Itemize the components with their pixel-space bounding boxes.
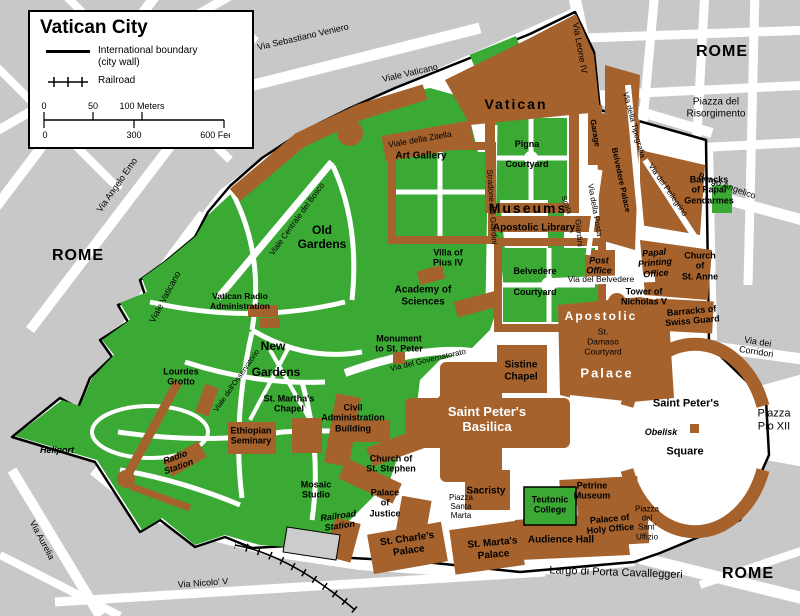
label-ethiopian-seminary: Ethiopian Seminary: [231, 426, 272, 447]
label-radio-station: Radio Station: [159, 447, 195, 477]
label-petrine-museum: Petrine Museum: [574, 481, 611, 502]
label-viale-vaticano-west: Viale Vaticano: [147, 270, 183, 325]
label-palace: Palace: [580, 367, 633, 382]
label-audience-hall: Audience Hall: [528, 534, 594, 546]
label-monument-to-st-peter: Monument to St. Peter: [375, 334, 423, 355]
legend-boundary-row: International boundary (city wall): [46, 45, 244, 69]
scale-m100: 100 Meters: [119, 101, 165, 111]
label-via-angelo-emo: Via Angelo Emo: [94, 156, 139, 214]
label-church-of-st-anne: Church of St. Anne: [682, 250, 718, 281]
label-piazza-pio-xii: Piazza Pio XII: [757, 407, 790, 432]
label-piazza-del-sant-uffizio: Piazza del Sant' Uffizio: [635, 505, 659, 542]
label-via-della-tipografia: Via della Tipografia: [621, 91, 647, 159]
label-papal-printing-office: Papal Printing Office: [637, 246, 674, 280]
label-via-del-pellegrino: Via del Pellegrino: [646, 162, 689, 218]
legend-box: Vatican City International boundary (cit…: [28, 10, 254, 149]
label-vatican-radio-administration: Vatican Radio Administration: [210, 292, 270, 312]
label-sacristy: Sacristy: [467, 485, 506, 497]
label-apostolic: Apostolic: [565, 310, 638, 324]
label-via-leone-iv: Via Leone IV: [570, 22, 589, 74]
label-railroad-station: Railroad Station: [320, 508, 359, 533]
label-viale-vaticano-top: Viale Vaticano: [381, 62, 439, 85]
label-via-sebastiano-veniero: Via Sebastiano Veniero: [256, 21, 349, 52]
label-heliport: Heliport: [40, 445, 74, 455]
label-palace-of-holy-office: Palace of Holy Office: [585, 512, 634, 537]
map-title: Vatican City: [40, 17, 244, 39]
legend-railroad-row: Railroad: [46, 75, 244, 93]
vatican-city-map: ROME ROME ROME Vatican Museums Old Garde…: [0, 0, 800, 616]
scale-f0: 0: [42, 130, 47, 140]
railroad-swatch-icon: [46, 76, 90, 88]
label-st-damaso-courtyard: St. Damaso Courtyard: [584, 327, 621, 356]
label-new: New: [261, 340, 286, 354]
label-academy-of-sciences: Academy of Sciences: [395, 285, 452, 308]
label-st-martas-palace: St. Marta's Palace: [467, 535, 519, 562]
label-art-gallery: Art Gallery: [395, 150, 446, 162]
label-civil-administration-building: Civil Administration Building: [321, 402, 385, 433]
label-post-office: Post Office: [586, 256, 611, 277]
label-villa-of-pius-iv: Villa of Pius IV: [433, 248, 463, 269]
label-belvedere-palace: Belvedere Palace: [610, 147, 633, 213]
label-via-dei-corridori: Via dei Corridori: [734, 333, 780, 360]
label-rome-northeast: ROME: [696, 43, 748, 61]
scale-bar: 0 50 100 Meters 0 300 600 Feet: [40, 99, 230, 141]
label-via-del-belvedere: Via del Belvedere: [568, 275, 634, 285]
scale-m50: 50: [88, 101, 98, 111]
label-saint-peters: Saint Peter's: [653, 398, 719, 411]
label-piazza-santa-marta: Piazza Santa Marta: [449, 493, 473, 521]
label-lourdes-grotto: Lourdes Grotto: [163, 367, 199, 388]
label-barracks-of-papal-gendarmes: Barracks of Papal Gendarmes: [684, 174, 734, 205]
label-barracks-of-swiss-guard: Barracks of Swiss Guard: [664, 303, 720, 328]
scale-f300: 300: [126, 130, 141, 140]
label-sistine-chapel: Sistine Chapel: [504, 360, 537, 383]
label-largo-di-porta-cavalleggeri: Largo di Porta Cavalleggeri: [549, 564, 683, 581]
label-apostolic-library: Apostolic Library: [493, 222, 575, 234]
label-church-of-st-stephen: Church of St. Stephen: [366, 454, 416, 475]
scale-m0: 0: [41, 101, 46, 111]
label-viale-della-zitella: Viale della Zitella: [388, 130, 453, 151]
label-old-gardens: Old Gardens: [298, 224, 347, 252]
label-obelisk: Obelisk: [645, 427, 678, 437]
legend-boundary-label: International boundary (city wall): [98, 45, 198, 69]
label-st-marthas-chapel: St. Martha's Chapel: [264, 394, 315, 415]
label-tower-of-nicholas-v: Tower of Nicholas V: [621, 287, 667, 308]
label-palace-of-justice: Palace of Justice: [369, 487, 400, 518]
label-rome-southeast: ROME: [722, 565, 774, 583]
label-pigna-courtyard: Pigna Courtyard: [505, 134, 548, 174]
label-teutonic-college: Teutonic College: [532, 495, 569, 516]
label-piazza-del-risorgimento: Piazza del Risorgimento: [687, 97, 746, 120]
scale-f600: 600 Feet: [200, 130, 230, 140]
label-museums: Museums: [489, 200, 568, 216]
label-vatican: Vatican: [484, 96, 547, 112]
label-saint-peters-basilica: Saint Peter's Basilica: [448, 405, 526, 435]
label-square: Square: [666, 446, 703, 459]
label-belvedere-courtyard: Belvedere Courtyard: [513, 261, 556, 303]
label-via-aurelia: Via Aurelia: [27, 519, 56, 562]
label-garage: Garage: [588, 119, 602, 148]
boundary-line-swatch: [46, 50, 90, 53]
legend-railroad-label: Railroad: [98, 75, 135, 87]
label-mosaic-studio: Mosaic Studio: [301, 480, 332, 501]
label-rome-west: ROME: [52, 247, 104, 265]
label-gardens: Gardens: [252, 366, 301, 380]
label-via-della-posta: Via della Posta: [586, 183, 604, 237]
label-viale-dell-osservatorio: Viale dell'Osservatorio: [212, 348, 262, 414]
label-st-charles-palace: St. Charle's Palace: [379, 530, 436, 560]
label-via-nicolo-v: Via Nicolo' V: [177, 576, 228, 590]
